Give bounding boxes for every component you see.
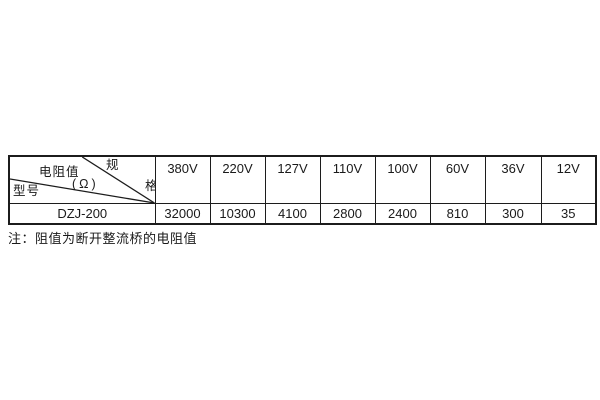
voltage-header-100v: 100V (375, 156, 430, 204)
voltage-header-36v: 36V (485, 156, 541, 204)
voltage-header-12v: 12V (541, 156, 596, 204)
model-axis-label: 型号 (13, 184, 40, 198)
resistance-spec-table: 电阻值 (Ω) 型号 规 格 380V 220V 127V 110V 100V … (8, 155, 597, 225)
resistance-cell-12v: 35 (541, 204, 596, 225)
resistance-cell-100v: 2400 (375, 204, 430, 225)
voltage-header-380v: 380V (155, 156, 210, 204)
page: 电阻值 (Ω) 型号 规 格 380V 220V 127V 110V 100V … (0, 0, 600, 400)
spec-axis-label-char1: 规 (106, 158, 119, 172)
voltage-header-110v: 110V (320, 156, 375, 204)
corner-header-cell: 电阻值 (Ω) 型号 规 格 (9, 156, 155, 204)
table-row: DZJ-200 32000 10300 4100 2800 2400 810 3… (9, 204, 596, 225)
header-row: 电阻值 (Ω) 型号 规 格 380V 220V 127V 110V 100V … (9, 156, 596, 204)
resistance-cell-380v: 32000 (155, 204, 210, 225)
voltage-header-60v: 60V (430, 156, 485, 204)
resistance-cell-60v: 810 (430, 204, 485, 225)
voltage-header-220v: 220V (210, 156, 265, 204)
spec-axis-label-char2: 格 (145, 179, 155, 193)
model-cell: DZJ-200 (9, 204, 155, 225)
resistance-cell-110v: 2800 (320, 204, 375, 225)
resistance-unit-label: (Ω) (72, 177, 99, 191)
resistance-cell-220v: 10300 (210, 204, 265, 225)
resistance-cell-36v: 300 (485, 204, 541, 225)
voltage-header-127v: 127V (265, 156, 320, 204)
resistance-cell-127v: 4100 (265, 204, 320, 225)
footnote: 注：阻值为断开整流桥的电阻值 (8, 228, 197, 247)
